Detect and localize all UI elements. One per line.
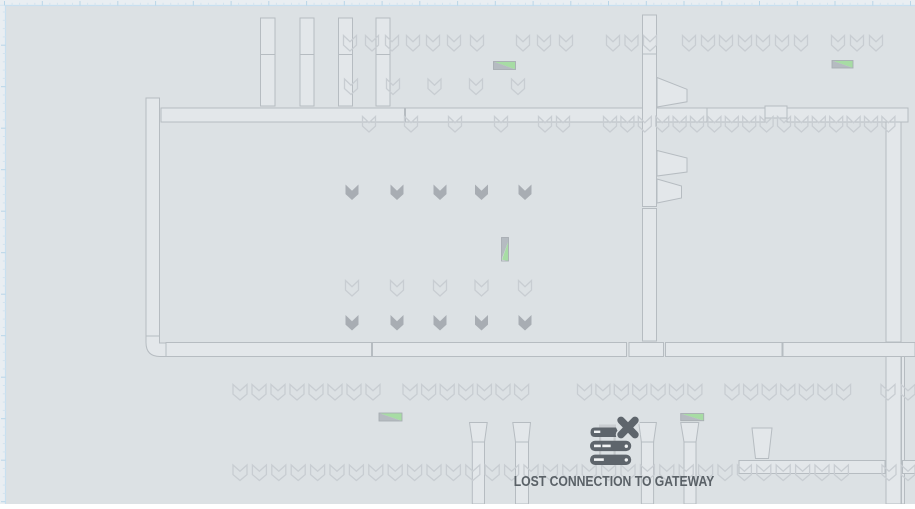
svg-text:LOST CONNECTION TO GATEWAY: LOST CONNECTION TO GATEWAY: [514, 473, 715, 489]
